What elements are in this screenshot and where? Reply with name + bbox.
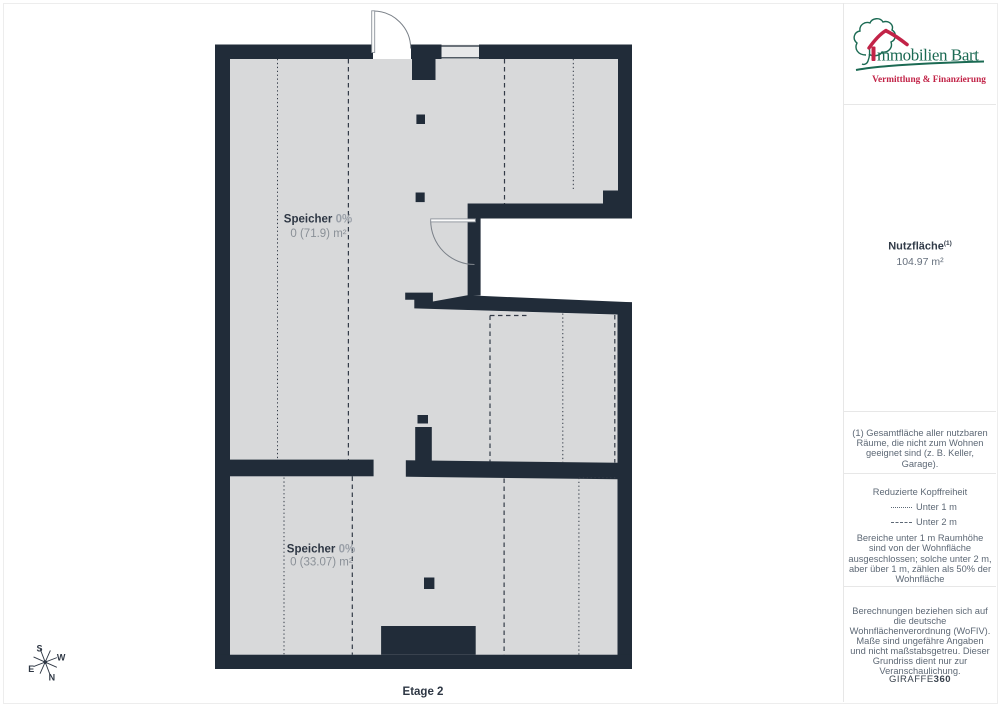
svg-text:0 (33.07) m²: 0 (33.07) m² — [290, 557, 353, 569]
svg-text:W: W — [57, 653, 66, 663]
svg-text:E: E — [28, 664, 34, 674]
svg-text:Etage 2: Etage 2 — [403, 686, 444, 698]
svg-text:Speicher 0%: Speicher 0% — [287, 543, 355, 555]
svg-text:N: N — [49, 672, 56, 682]
svg-text:0 (71.9) m²: 0 (71.9) m² — [290, 228, 346, 240]
svg-text:S: S — [36, 644, 42, 654]
svg-text:Vermittlung & Finanzierung: Vermittlung & Finanzierung — [872, 75, 986, 85]
svg-text:Speicher 0%: Speicher 0% — [284, 214, 352, 226]
